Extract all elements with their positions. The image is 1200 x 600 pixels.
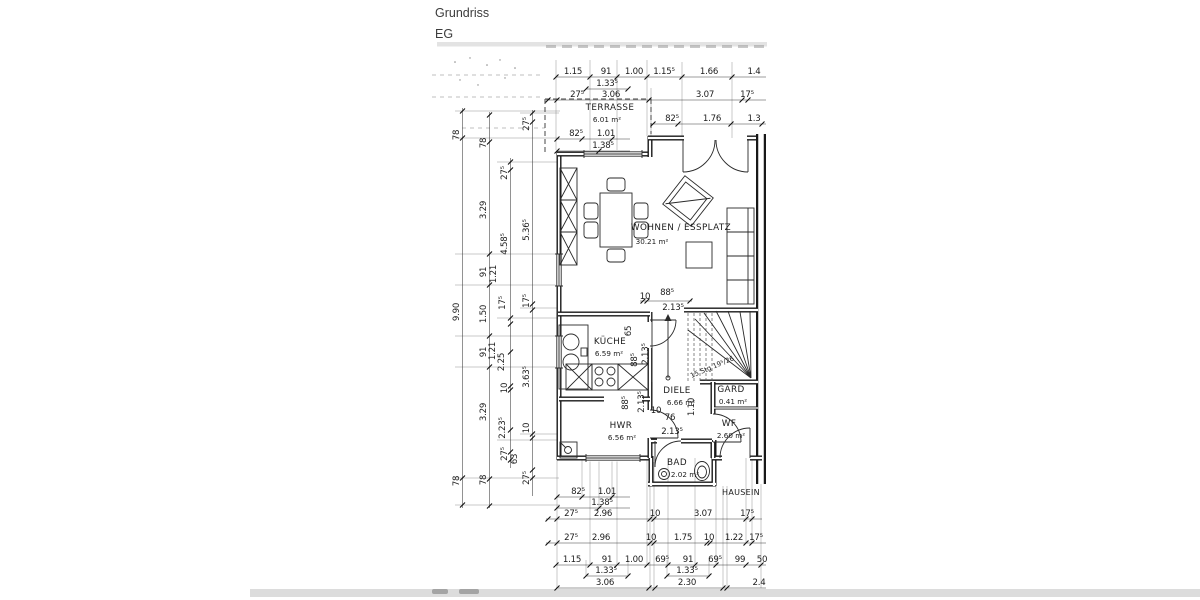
dim-bottom_row2-1: 2.96 — [594, 509, 612, 519]
dim-top_row1-2: 1.00 — [625, 67, 643, 77]
dim-left_chain_4-2: 17⁵ — [522, 293, 532, 308]
dim-top_row2-3: 17⁵ — [740, 90, 755, 100]
dim-left_chain_3-5: 2.25 — [497, 353, 507, 371]
room-area-gard: 0.41 m² — [719, 397, 747, 406]
dim-inner-10: 2.13⁵ — [661, 427, 683, 437]
rotated-table — [663, 176, 714, 227]
dim-bottom_row4-6: 99 — [735, 555, 746, 565]
entrance-label: HAUSEIN — [722, 488, 760, 497]
dim-bottom_row2-4: 17⁵ — [740, 509, 755, 519]
dim-inner-4: 88⁵ — [630, 352, 640, 367]
dim-bottom_row5-0: 3.06 — [596, 578, 614, 588]
dim-top_row1b-0: 1.33⁵ — [596, 79, 618, 89]
dim-left_chain_4-4: 10 — [522, 423, 532, 434]
dim-left_chain_outer-2: 78 — [452, 476, 462, 487]
dim-inner-9: 76 — [665, 413, 676, 423]
dim-bottom_row3-6: 17⁵ — [749, 533, 764, 543]
floorplan-drawing: 1.15911.001.15⁵1.661.41.33⁵27⁵3.063.0717… — [0, 0, 1200, 600]
room-name-terrasse: TERRASSE — [585, 103, 635, 113]
dim-bottom_row3-5: 1.22 — [725, 533, 743, 543]
dim-left_chain_3-9: 63 — [510, 454, 520, 465]
dim-bottom_row2-2: 10 — [650, 509, 661, 519]
dim-bottom_row5-2: 2.4 — [752, 578, 765, 588]
room-area-hwr: 6.56 m² — [608, 433, 636, 442]
dim-bottom_row4-3: 69⁵ — [655, 555, 670, 565]
dim-bottom_row3-1: 2.96 — [592, 533, 610, 543]
dim-bottom_row4-4: 91 — [683, 555, 694, 565]
dim-left_chain_4-5: 27⁵ — [522, 470, 532, 485]
dim-inner-0: 10 — [640, 292, 651, 302]
room-area-wohnen-essplatz: 30.21 m² — [636, 237, 669, 246]
dim-bottom_row3-2: 10 — [646, 533, 657, 543]
dim-left_chain_3-2: 1.21 — [489, 265, 499, 283]
dim-top_row2-1: 3.06 — [602, 90, 620, 100]
dim-inner-1: 88⁵ — [660, 288, 675, 298]
windows — [555, 150, 642, 462]
dim-left_chain_3-3: 17⁵ — [498, 295, 508, 310]
dim-bottom_row4b-0: 1.33⁵ — [595, 566, 617, 576]
room-area-bad: 2.02 m² — [671, 470, 699, 479]
dim-bottom_row2-0: 27⁵ — [564, 509, 579, 519]
dim-top_row1-0: 1.15 — [564, 67, 582, 77]
dim-bottom_row3-0: 27⁵ — [564, 533, 579, 543]
kitchen-sink-counter — [559, 325, 588, 389]
dim-top_row1-5: 1.4 — [747, 67, 760, 77]
dim-bottom_row1b-0: 1.38⁵ — [591, 498, 613, 508]
dim-terrace_win_row2-0: 1.38⁵ — [592, 141, 614, 151]
room-name-diele: DIELE — [663, 386, 690, 396]
room-name-wohnen-essplatz: WOHNEN / ESSPLATZ — [631, 223, 731, 233]
dim-left_chain_2-1: 3.29 — [479, 201, 489, 219]
dim-bottom_row4-1: 91 — [602, 555, 613, 565]
room-name-gard: GARD — [717, 385, 744, 395]
wall-cabinet — [560, 168, 577, 265]
stair-direction-arrow — [665, 314, 672, 321]
dim-left_chain_3-7: 2.23⁵ — [498, 416, 508, 438]
dim-left_chain_2-5: 3.29 — [479, 403, 489, 421]
dim-left_chain_3-6: 10 — [500, 383, 510, 394]
dim-inner-8: 10 — [651, 406, 662, 416]
scan-artifacts — [250, 42, 1200, 597]
dim-top_row1-1: 91 — [601, 67, 612, 77]
room-area-terrasse: 6.01 m² — [593, 115, 621, 124]
dim-left_chain_3-8: 27⁵ — [500, 446, 510, 461]
dim-bottom_row5-1: 2.30 — [678, 578, 696, 588]
dim-bottom_row4-7: 50 — [757, 555, 768, 565]
kitchen-counter — [566, 364, 648, 390]
dim-inner-3: 65 — [624, 326, 634, 337]
dim-left_chain_4-3: 3.63⁵ — [522, 365, 532, 387]
dim-top_row1-3: 1.15⁵ — [653, 67, 675, 77]
labels-layer: 1.15911.001.15⁵1.661.41.33⁵27⁵3.063.0717… — [452, 67, 767, 588]
dim-bottom_row3-4: 10 — [704, 533, 715, 543]
dim-left_chain_outer-0: 78 — [452, 130, 462, 141]
dim-left_chain_2-3: 1.50 — [479, 305, 489, 323]
room-name-kueche: KÜCHE — [594, 336, 626, 347]
room-name-bad: BAD — [667, 458, 687, 468]
room-name-wf: WF — [722, 419, 737, 429]
dim-bottom_row4-0: 1.15 — [563, 555, 581, 565]
dim-inner-7: 2.13⁵ — [637, 390, 647, 412]
dim-terrace_win_row-0: 82⁵ — [569, 129, 584, 139]
dim-terrace_door_row-1: 1.76 — [703, 114, 721, 124]
room-area-kueche: 6.59 m² — [595, 349, 623, 358]
dim-bottom_row1-1: 1.01 — [598, 487, 616, 497]
room-name-hwr: HWR — [610, 421, 633, 431]
side-table — [686, 242, 712, 268]
dim-inner-6: 88⁵ — [621, 395, 631, 410]
dim-left_chain_2-0: 78 — [479, 138, 489, 149]
dim-left_chain_3-1: 4.58⁵ — [500, 232, 510, 254]
dining-table-set — [584, 178, 648, 262]
dim-left_chain_outer-1: 9.90 — [452, 303, 462, 321]
dim-left_chain_2-2: 91 — [479, 267, 489, 278]
dim-top_row2-2: 3.07 — [696, 90, 714, 100]
dim-top_row2-0: 27⁵ — [570, 90, 585, 100]
dim-inner-5: 2.13⁵ — [641, 342, 651, 364]
dim-top_row1-4: 1.66 — [700, 67, 718, 77]
dim-terrace_door_row-2: 1.3 — [747, 114, 760, 124]
dim-left_chain_4-0: 27⁵ — [522, 116, 532, 131]
dim-bottom_row3-3: 1.75 — [674, 533, 692, 543]
dim-left_chain_2-6: 78 — [479, 475, 489, 486]
dim-bottom_row2-3: 3.07 — [694, 509, 712, 519]
dim-left_chain_3-0: 27⁵ — [500, 165, 510, 180]
room-area-wf: 2.60 m² — [717, 431, 745, 440]
dim-bottom_row1-0: 82⁵ — [571, 487, 586, 497]
dim-bottom_row4-2: 1.00 — [625, 555, 643, 565]
dim-inner-2: 2.13⁵ — [662, 303, 684, 313]
dim-left_chain_4-1: 5.36⁵ — [522, 218, 532, 240]
dim-bottom_row4-5: 69⁵ — [708, 555, 723, 565]
dim-terrace_win_row-1: 1.01 — [597, 129, 615, 139]
dim-bottom_row4b-1: 1.33⁵ — [676, 566, 698, 576]
room-area-diele: 6.66 m² — [667, 398, 695, 407]
dim-terrace_door_row-0: 82⁵ — [665, 114, 680, 124]
